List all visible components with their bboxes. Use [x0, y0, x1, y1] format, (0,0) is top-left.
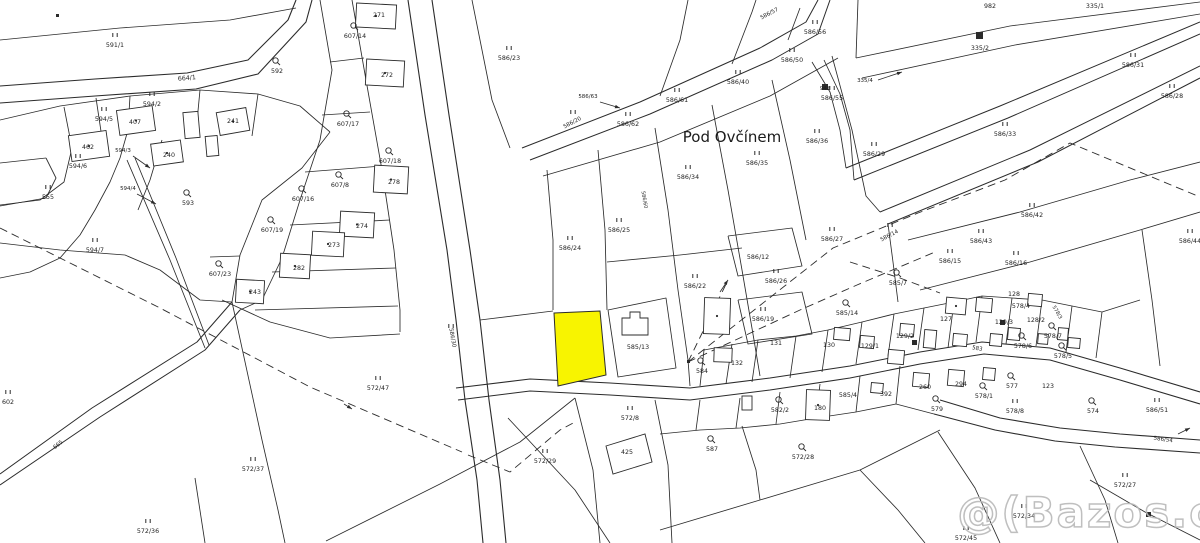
parcel-label: 130	[823, 342, 835, 349]
parcel-label: 572/28	[792, 454, 814, 461]
parcel-label: 594/7	[86, 247, 104, 254]
parcel-label: 586/62	[617, 121, 639, 128]
place-name-label: Pod Ovčínem	[683, 128, 781, 146]
parcel-label: 127	[940, 316, 952, 323]
parcel-label: 594/2	[143, 101, 161, 108]
parcel-label: 335/4	[857, 78, 873, 84]
building	[975, 297, 992, 312]
building	[183, 111, 200, 138]
building-mark-icon	[56, 14, 59, 17]
parcel-label: 586/16	[1005, 260, 1027, 267]
parcel-label: 271	[373, 12, 385, 19]
parcel-label: 131	[770, 340, 782, 347]
parcel-label: 129/3	[995, 319, 1013, 326]
parcel-label: 462	[82, 144, 94, 151]
parcel-label: 586/34	[677, 174, 699, 181]
parcel-label: 572/47	[367, 385, 389, 392]
parcel-label: 607/18	[379, 158, 401, 165]
building-mark-icon	[687, 360, 690, 363]
building-mark-icon	[912, 340, 917, 345]
parcel-label: 294	[955, 381, 967, 388]
parcel-label: 586/50	[781, 57, 803, 64]
parcel-label: 586/55	[821, 95, 843, 102]
parcel-label: 586/42	[1021, 212, 1043, 219]
parcel-label: 607/23	[209, 271, 231, 278]
parcel-label: 586/29	[863, 151, 885, 158]
parcel-label: 273	[328, 242, 340, 249]
parcel-label: 578/1	[975, 393, 993, 400]
parcel-label: 607/14	[344, 33, 366, 40]
parcel-label: 948	[820, 86, 831, 92]
parcel-label: 582/2	[771, 407, 789, 414]
parcel-label: 586/61	[666, 97, 688, 104]
parcel-label: 586/12	[747, 254, 769, 261]
parcel-label: 578/4	[1012, 303, 1030, 310]
parcel-label: 243	[249, 289, 261, 296]
parcel-label: 586/23	[498, 55, 520, 62]
building	[205, 136, 219, 157]
parcel-label: 587	[706, 446, 718, 453]
parcel-label: 180	[814, 405, 826, 412]
parcel-label: 585/7	[889, 280, 907, 287]
parcel-label: 586/31	[1122, 62, 1144, 69]
parcel-label: 586/27	[821, 236, 843, 243]
parcel-label: 132	[731, 360, 743, 367]
parcel-label: 586/26	[765, 278, 787, 285]
parcel-label: 572/29	[534, 458, 556, 465]
parcel-label: 282	[293, 265, 305, 272]
cadastral-map: 591/1664/1592594/2594/5407462594/6594/35…	[0, 0, 1200, 543]
parcel-label: 586/40	[727, 79, 749, 86]
parcel-label: 586/15	[939, 258, 961, 265]
parcel-label: 586/19	[752, 316, 774, 323]
parcel-label: 592	[271, 68, 283, 75]
parcel-label: 586/22	[684, 283, 706, 290]
parcel-label: 586/44	[1179, 238, 1200, 245]
parcel-label: 274	[356, 223, 368, 230]
parcel-label: 585/4	[839, 392, 857, 399]
parcel-label: 593	[182, 200, 194, 207]
parcel-label: 578/7	[1044, 333, 1062, 340]
parcel-label: 586/24	[559, 245, 581, 252]
parcel-label: 594/6	[69, 163, 87, 170]
parcel-label: 982	[984, 3, 996, 10]
building	[742, 396, 752, 410]
building	[714, 348, 732, 363]
parcel-label: 574	[1087, 408, 1099, 415]
parcel-label: 586/35	[746, 160, 768, 167]
parcel-label: 278	[388, 179, 400, 186]
map-canvas: 591/1664/1592594/2594/5407462594/6594/35…	[0, 0, 1200, 543]
building	[982, 367, 995, 380]
parcel-label: 585/14	[836, 310, 858, 317]
parcel-label: 594/4	[120, 186, 136, 192]
building-mark-icon	[976, 32, 983, 39]
parcel-label: 591/1	[106, 42, 124, 49]
parcel-label: 594/5	[95, 116, 113, 123]
parcel-label: 572/8	[621, 415, 639, 422]
parcel-label: 584	[696, 368, 708, 375]
parcel-label: 586/36	[806, 138, 828, 145]
building	[953, 333, 968, 346]
parcel-label: 407	[129, 119, 141, 126]
highlighted-parcel	[554, 311, 606, 386]
parcel-label: 586/63	[578, 94, 598, 100]
parcel-label: 241	[227, 118, 239, 125]
parcel-label: 586/28	[1161, 93, 1183, 100]
building	[1068, 337, 1081, 348]
parcel-label: 594/3	[115, 148, 131, 154]
building	[923, 330, 937, 349]
parcel-label: 123	[1042, 383, 1054, 390]
parcel-label: 425	[621, 449, 633, 456]
parcel-label: 392	[880, 391, 892, 398]
parcel-label: 578/5	[1054, 353, 1072, 360]
parcel-label: 607/19	[261, 227, 283, 234]
parcel-label: 585/13	[627, 344, 649, 351]
parcel-label: 555	[42, 194, 54, 201]
parcel-label: 607/16	[292, 196, 314, 203]
building	[1007, 327, 1020, 340]
parcel-label: 335/1	[1086, 3, 1104, 10]
parcel-label: 579	[931, 406, 943, 413]
parcel-label: 602	[2, 399, 14, 406]
building	[989, 333, 1002, 346]
building-dot-icon	[955, 305, 957, 307]
parcel-label: 128/2	[1027, 317, 1045, 324]
parcel-label: 586/56	[804, 29, 826, 36]
parcel-label: 586/25	[608, 227, 630, 234]
parcel-label: 586/51	[1146, 407, 1168, 414]
parcel-label: 607/17	[337, 121, 359, 128]
parcel-label: 335/2	[971, 45, 989, 52]
parcel-label: 128	[1008, 291, 1020, 298]
parcel-label: 129/1	[861, 343, 879, 350]
building	[834, 327, 851, 340]
building-dot-icon	[716, 315, 718, 317]
parcel-label: 572/37	[242, 466, 264, 473]
parcel-label: 272	[381, 72, 393, 79]
parcel-label: 578/6	[1014, 343, 1032, 350]
parcel-label: 129/2	[896, 333, 914, 340]
parcel-label: 578/8	[1006, 408, 1024, 415]
parcel-label: 240	[163, 152, 175, 159]
map-geometry: 591/1664/1592594/2594/5407462594/6594/35…	[0, 0, 1200, 543]
parcel-label: 572/36	[137, 528, 159, 535]
parcel-label: 577	[1006, 383, 1018, 390]
watermark: @(Bazos.cz	[957, 488, 1200, 537]
parcel-label: 586/43	[970, 238, 992, 245]
parcel-label: 607/8	[331, 182, 349, 189]
parcel-label: 260	[919, 384, 931, 391]
parcel-label: 586/33	[994, 131, 1016, 138]
building	[887, 349, 904, 364]
